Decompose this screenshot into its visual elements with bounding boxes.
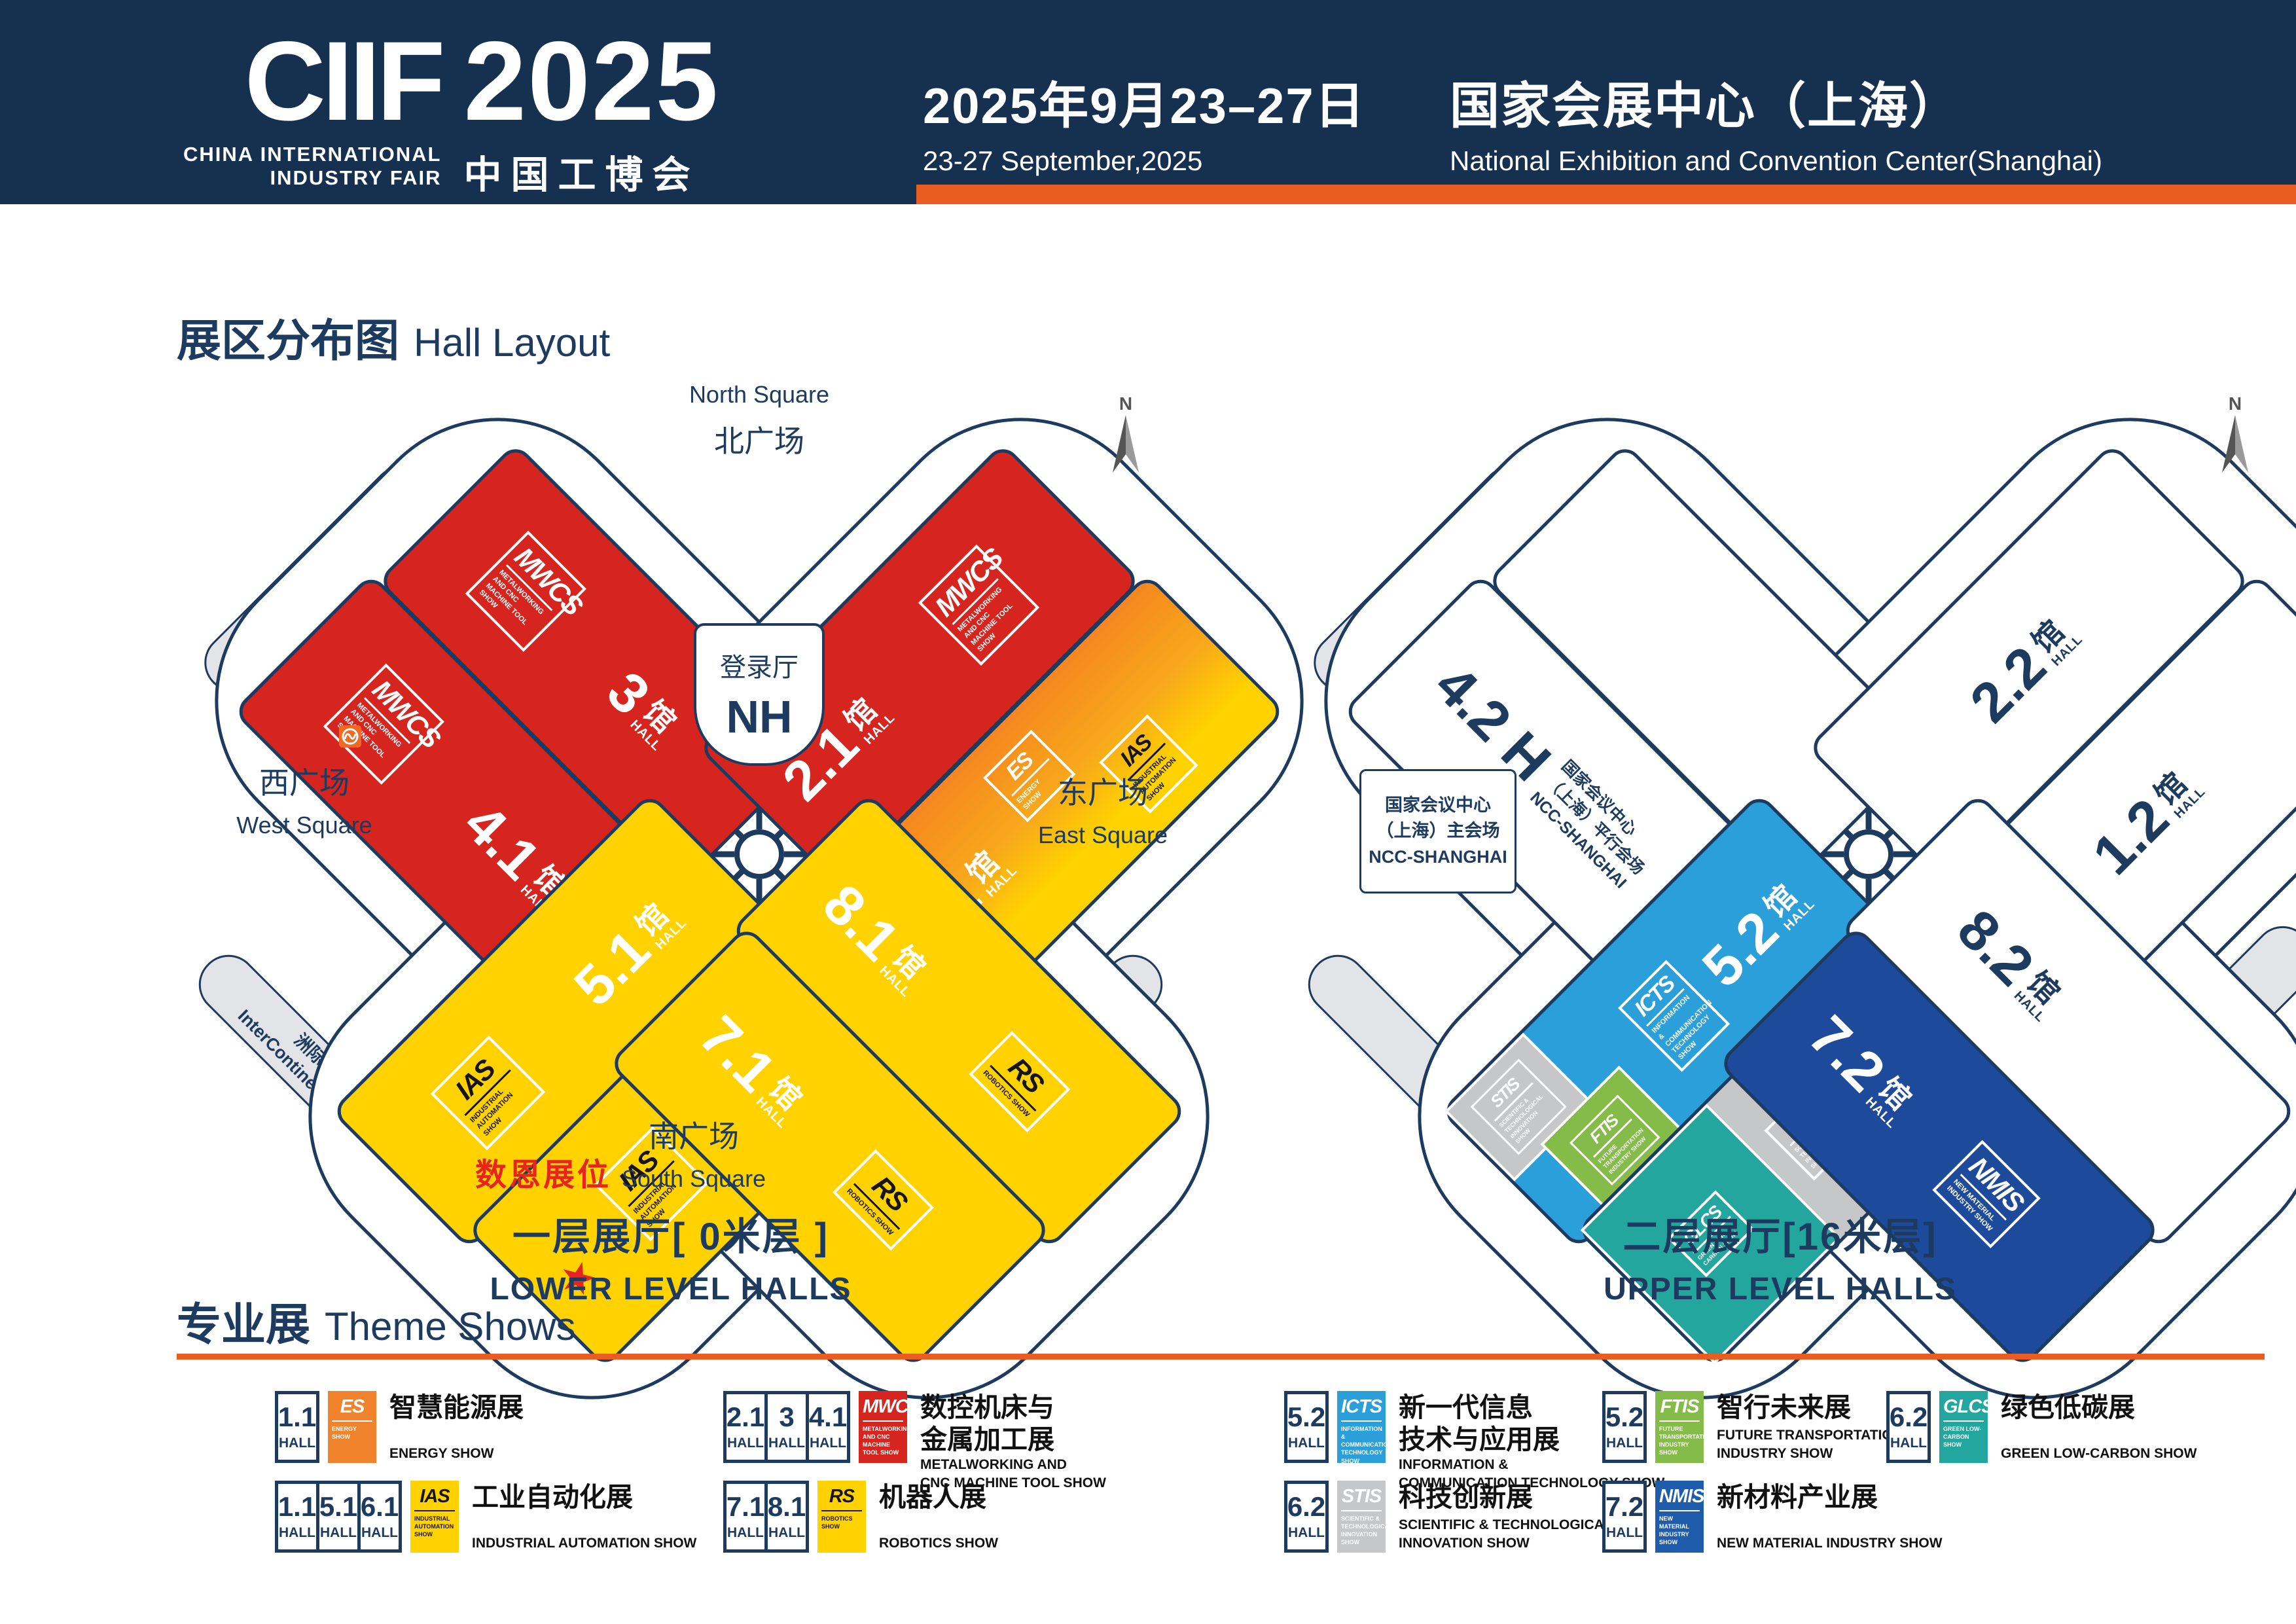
hall-box: 6.1HALL [357, 1481, 402, 1553]
logo-tagline-1: CHINA INTERNATIONAL [183, 143, 441, 166]
theme-shows-title: 专业展 Theme Shows [177, 1288, 576, 1353]
legend-entry-es: 1.1HALL ESENERGY SHOW 智慧能源展ENERGY SHOW [275, 1391, 524, 1463]
theme-shows-divider [177, 1354, 2265, 1360]
header-bar: CIIF CHINA INTERNATIONAL INDUSTRY FAIR 2… [0, 0, 2296, 204]
hall-8-2-number: 8.2 馆HALL [1950, 903, 2072, 1024]
ftis-logo: FTISFUTURE TRANSPORTATION INDUSTRY SHOW [1655, 1391, 1704, 1463]
hall-box: 5.2HALL [1284, 1391, 1329, 1463]
hall-7-2-number: 7.2 馆HALL [1802, 1009, 1923, 1130]
rs-logo: RS ROBOTICS SHOW [969, 1031, 1070, 1132]
hall-5-1-number: 5.1 馆HALL [568, 892, 689, 1013]
mwcs-logo: MWCS METALWORKING AND CNC MACHINE TOOL S… [465, 531, 586, 652]
hall-2-2-number: 2.2 馆HALL [1964, 608, 2085, 729]
icts-logo: ICTSINFORMATION & COMMUNICATION TECHNOLO… [1337, 1391, 1386, 1463]
hall-box: 1.1HALL [275, 1481, 319, 1553]
ciif-logo: CIIF CHINA INTERNATIONAL INDUSTRY FAIR 2… [183, 25, 719, 199]
hall-box: 5.2HALL [1602, 1391, 1647, 1463]
stis-logo: STISSCIENTIFIC & TECHNOLOGICAL INNOVATIO… [1337, 1481, 1386, 1553]
hall-box: 7.1HALL [723, 1481, 768, 1553]
metro-icon [339, 725, 361, 748]
hall-3-number: 3 馆HALL [600, 666, 689, 754]
header-accent-stripe [916, 185, 2296, 204]
hall-box: 4.1HALL [806, 1391, 850, 1463]
glcs-logo: GLCSGREEN LOW-CARBON SHOW [1939, 1391, 1988, 1463]
page: CIIF CHINA INTERNATIONAL INDUSTRY FAIR 2… [0, 0, 2296, 1624]
svg-text:N: N [1119, 393, 1132, 414]
compass-icon: N [2208, 393, 2263, 484]
west-square-label: 西广场 West Square [196, 759, 412, 839]
ncc-main-venue-box: 国家会议中心 （上海）主会场 NCC-SHANGHAI [1359, 769, 1516, 893]
hall-box: 5.1HALL [316, 1481, 361, 1553]
hall-box: 6.2HALL [1886, 1391, 1931, 1463]
es-logo: ESENERGY SHOW [328, 1391, 376, 1463]
logo-tagline-2: INDUSTRY FAIR [183, 166, 441, 190]
east-square-label: 东广场 East Square [995, 769, 1211, 849]
logo-ciif-text: CIIF [245, 25, 442, 137]
venue-cn: 国家会展中心（上海） [1450, 65, 2102, 137]
hall-box: 8.1HALL [764, 1481, 809, 1553]
hall-1-2-number: 1.2 馆HALL [2087, 761, 2208, 882]
rs-logo: RSROBOTICS SHOW [817, 1481, 866, 1553]
legend-entry-glcs: 6.2HALL GLCSGREEN LOW-CARBON SHOW 绿色低碳展G… [1886, 1391, 2197, 1463]
venue-en: National Exhibition and Convention Cente… [1450, 145, 2102, 177]
svg-text:N: N [2229, 393, 2242, 414]
logo-year: 2025 [463, 25, 719, 137]
legend-entry-nmis: 7.2HALL NMISNEW MATERIAL INDUSTRY SHOW 新… [1602, 1481, 1943, 1553]
date-en: 23-27 September,2025 [923, 145, 1366, 177]
event-dates: 2025年9月23–27日 23-27 September,2025 [923, 65, 1366, 177]
hall-box: 6.2HALL [1284, 1481, 1329, 1553]
upper-level-map: C0会议室（3楼） C0 Meeting Room 4.2 H [1299, 367, 2261, 1283]
event-venue: 国家会展中心（上海） National Exhibition and Conve… [1450, 65, 2102, 177]
legend-entry-rs: 7.1HALL 8.1HALL RSROBOTICS SHOW 机器人展ROBO… [723, 1481, 998, 1553]
north-square-label: North Square 北广场 [596, 381, 923, 461]
legend-entry-ftis: 5.2HALL FTISFUTURE TRANSPORTATION INDUST… [1602, 1391, 1903, 1463]
hall-box: 3HALL [764, 1391, 809, 1463]
legend-entry-mwcs: 2.1HALL 3HALL 4.1HALL MWCSMETALWORKING A… [723, 1391, 1106, 1463]
compass-icon: N [1098, 393, 1153, 484]
mwcs-logo: MWCS METALWORKING AND CNC MACHINE TOOL S… [918, 545, 1039, 666]
hall-box: 7.2HALL [1602, 1481, 1647, 1553]
logo-cn-name: 中国工博会 [463, 144, 699, 199]
legend-entry-stis: 6.2HALL STISSCIENTIFIC & TECHNOLOGICAL I… [1284, 1481, 1613, 1553]
upper-level-caption: 二层展厅[16米层] UPPER LEVEL HALLS [1299, 1206, 2261, 1307]
ias-logo: IASINDUSTRIAL AUTOMATION SHOW [410, 1481, 459, 1553]
date-cn: 2025年9月23–27日 [923, 65, 1366, 137]
nmis-logo: NMISNEW MATERIAL INDUSTRY SHOW [1655, 1481, 1704, 1553]
hall-box: 1.1HALL [275, 1391, 319, 1463]
hall-8-1-number: 8.1 馆HALL [816, 878, 937, 1000]
booth-note: 数恩展位 [439, 1149, 648, 1195]
mwcs-logo: MWCSMETALWORKING AND CNC MACHINE TOOL SH… [859, 1391, 907, 1463]
hall-box: 2.1HALL [723, 1391, 768, 1463]
ias-logo: IAS INDUSTRIAL AUTOMATION SHOW [431, 1036, 545, 1150]
lower-level-map: 办公楼A Office Building A 办公楼B Office Build… [190, 367, 1152, 1283]
legend-entry-ias: 1.1HALL 5.1HALL 6.1HALL IASINDUSTRIAL AU… [275, 1481, 696, 1553]
hall-layout-title: 展区分布图 Hall Layout [177, 304, 610, 369]
login-hall-nh: 登录厅 NH [694, 623, 825, 766]
hall-5-2-number: 5.2 馆HALL [1696, 873, 1817, 994]
